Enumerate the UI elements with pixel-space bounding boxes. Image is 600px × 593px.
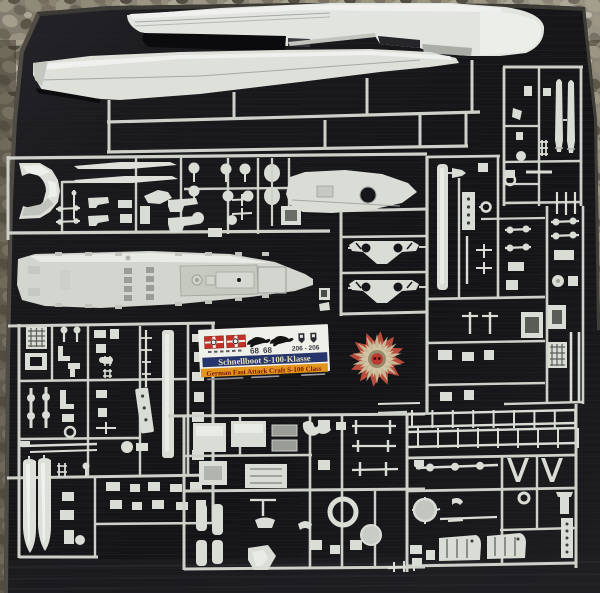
svg-text:206 - 206: 206 - 206: [292, 344, 320, 352]
svg-text:68: 68: [250, 346, 260, 355]
svg-text:68: 68: [263, 346, 273, 355]
